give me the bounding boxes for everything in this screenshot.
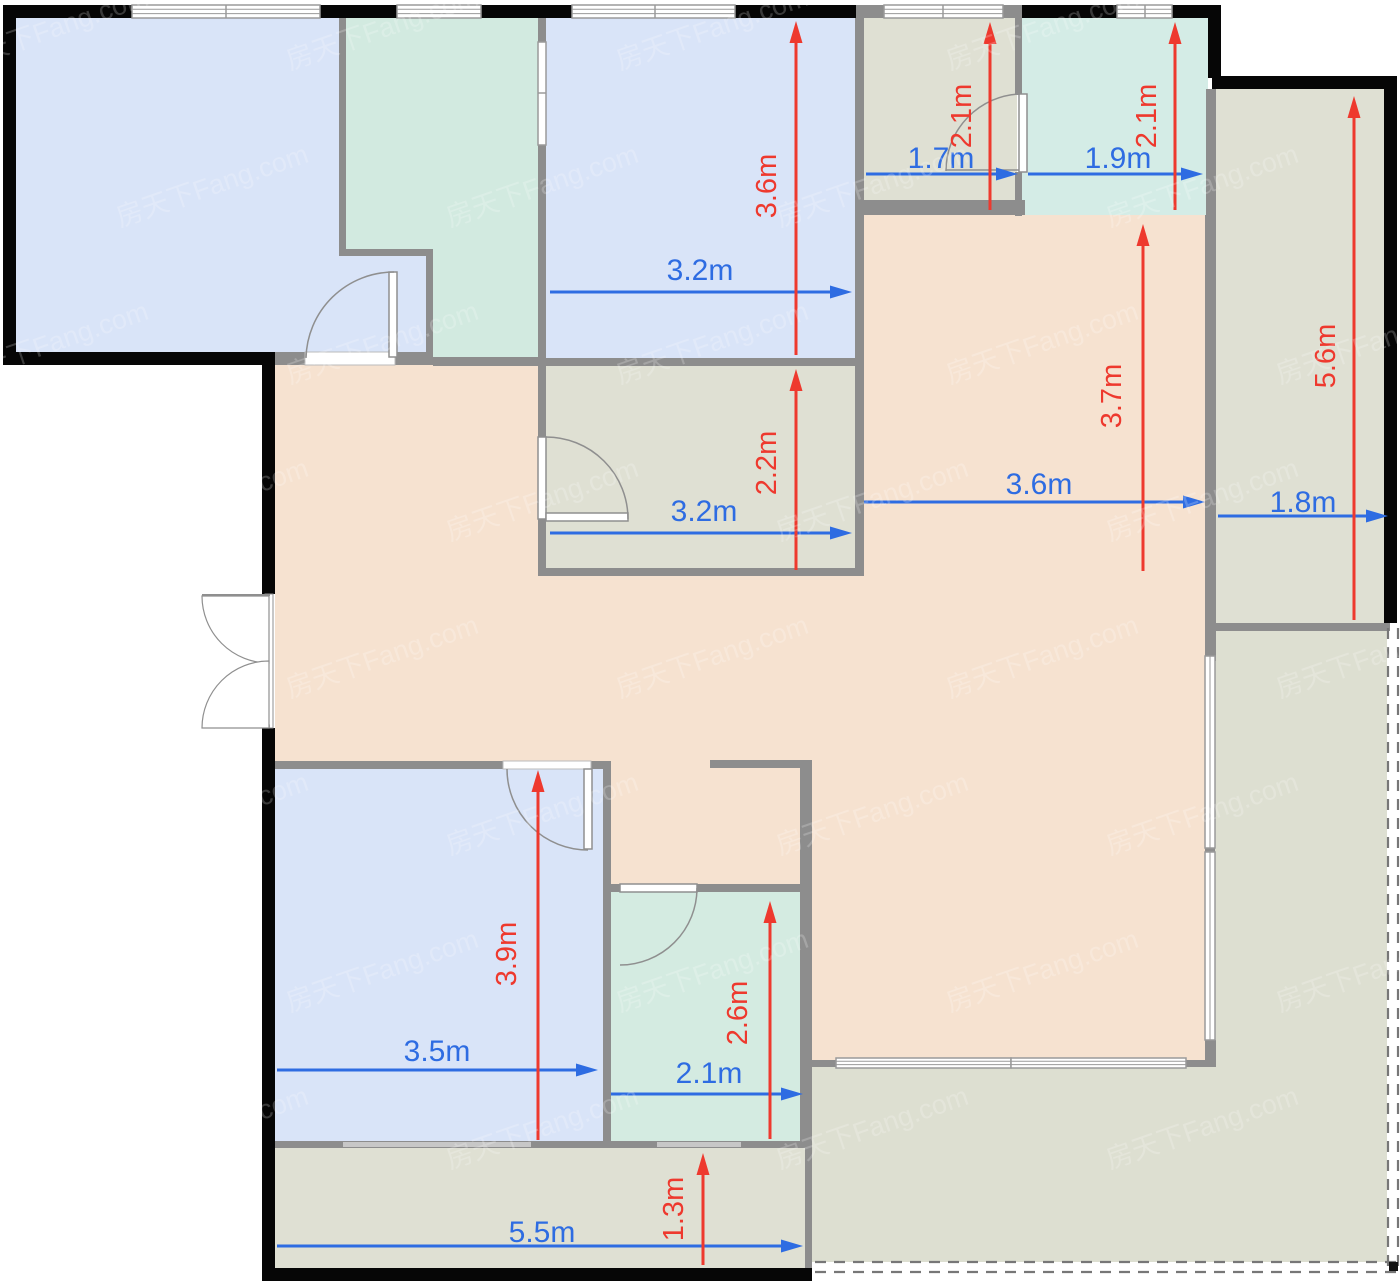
svg-text:1.3m: 1.3m (658, 1177, 690, 1241)
svg-text:3.2m: 3.2m (667, 254, 734, 287)
svg-text:2.1m: 2.1m (1131, 84, 1163, 148)
svg-text:2.1m: 2.1m (676, 1057, 743, 1090)
svg-text:1.8m: 1.8m (1270, 486, 1337, 519)
svg-text:3.7m: 3.7m (1096, 364, 1128, 428)
svg-text:3.9m: 3.9m (491, 922, 523, 986)
svg-text:3.5m: 3.5m (404, 1035, 471, 1068)
svg-text:2.6m: 2.6m (722, 981, 754, 1045)
svg-text:5.5m: 5.5m (509, 1216, 576, 1249)
svg-text:3.2m: 3.2m (671, 495, 738, 528)
svg-text:2.2m: 2.2m (751, 431, 783, 495)
svg-text:3.6m: 3.6m (1006, 468, 1073, 501)
